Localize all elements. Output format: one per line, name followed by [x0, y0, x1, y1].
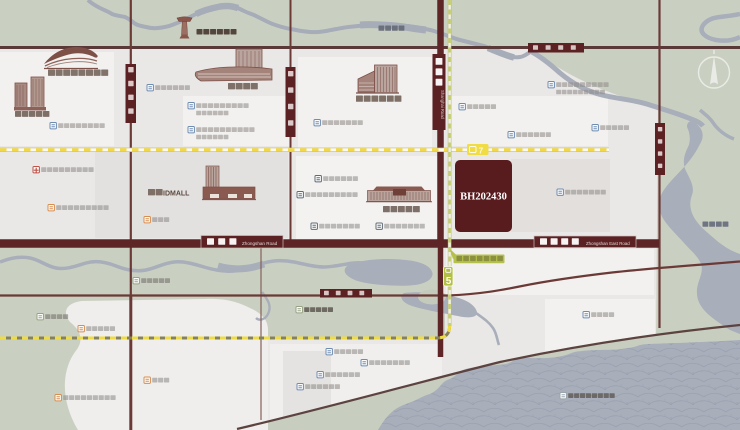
svg-text:Zhongshan Road: Zhongshan Road — [242, 241, 278, 246]
svg-text:Zhongshan East Road: Zhongshan East Road — [586, 241, 630, 246]
svg-text:IDMALL: IDMALL — [163, 191, 190, 198]
svg-text:BH202430: BH202430 — [460, 192, 507, 203]
svg-text:7: 7 — [479, 146, 484, 156]
svg-text:5: 5 — [446, 276, 452, 287]
svg-text:Shanghai Road: Shanghai Road — [440, 90, 445, 120]
